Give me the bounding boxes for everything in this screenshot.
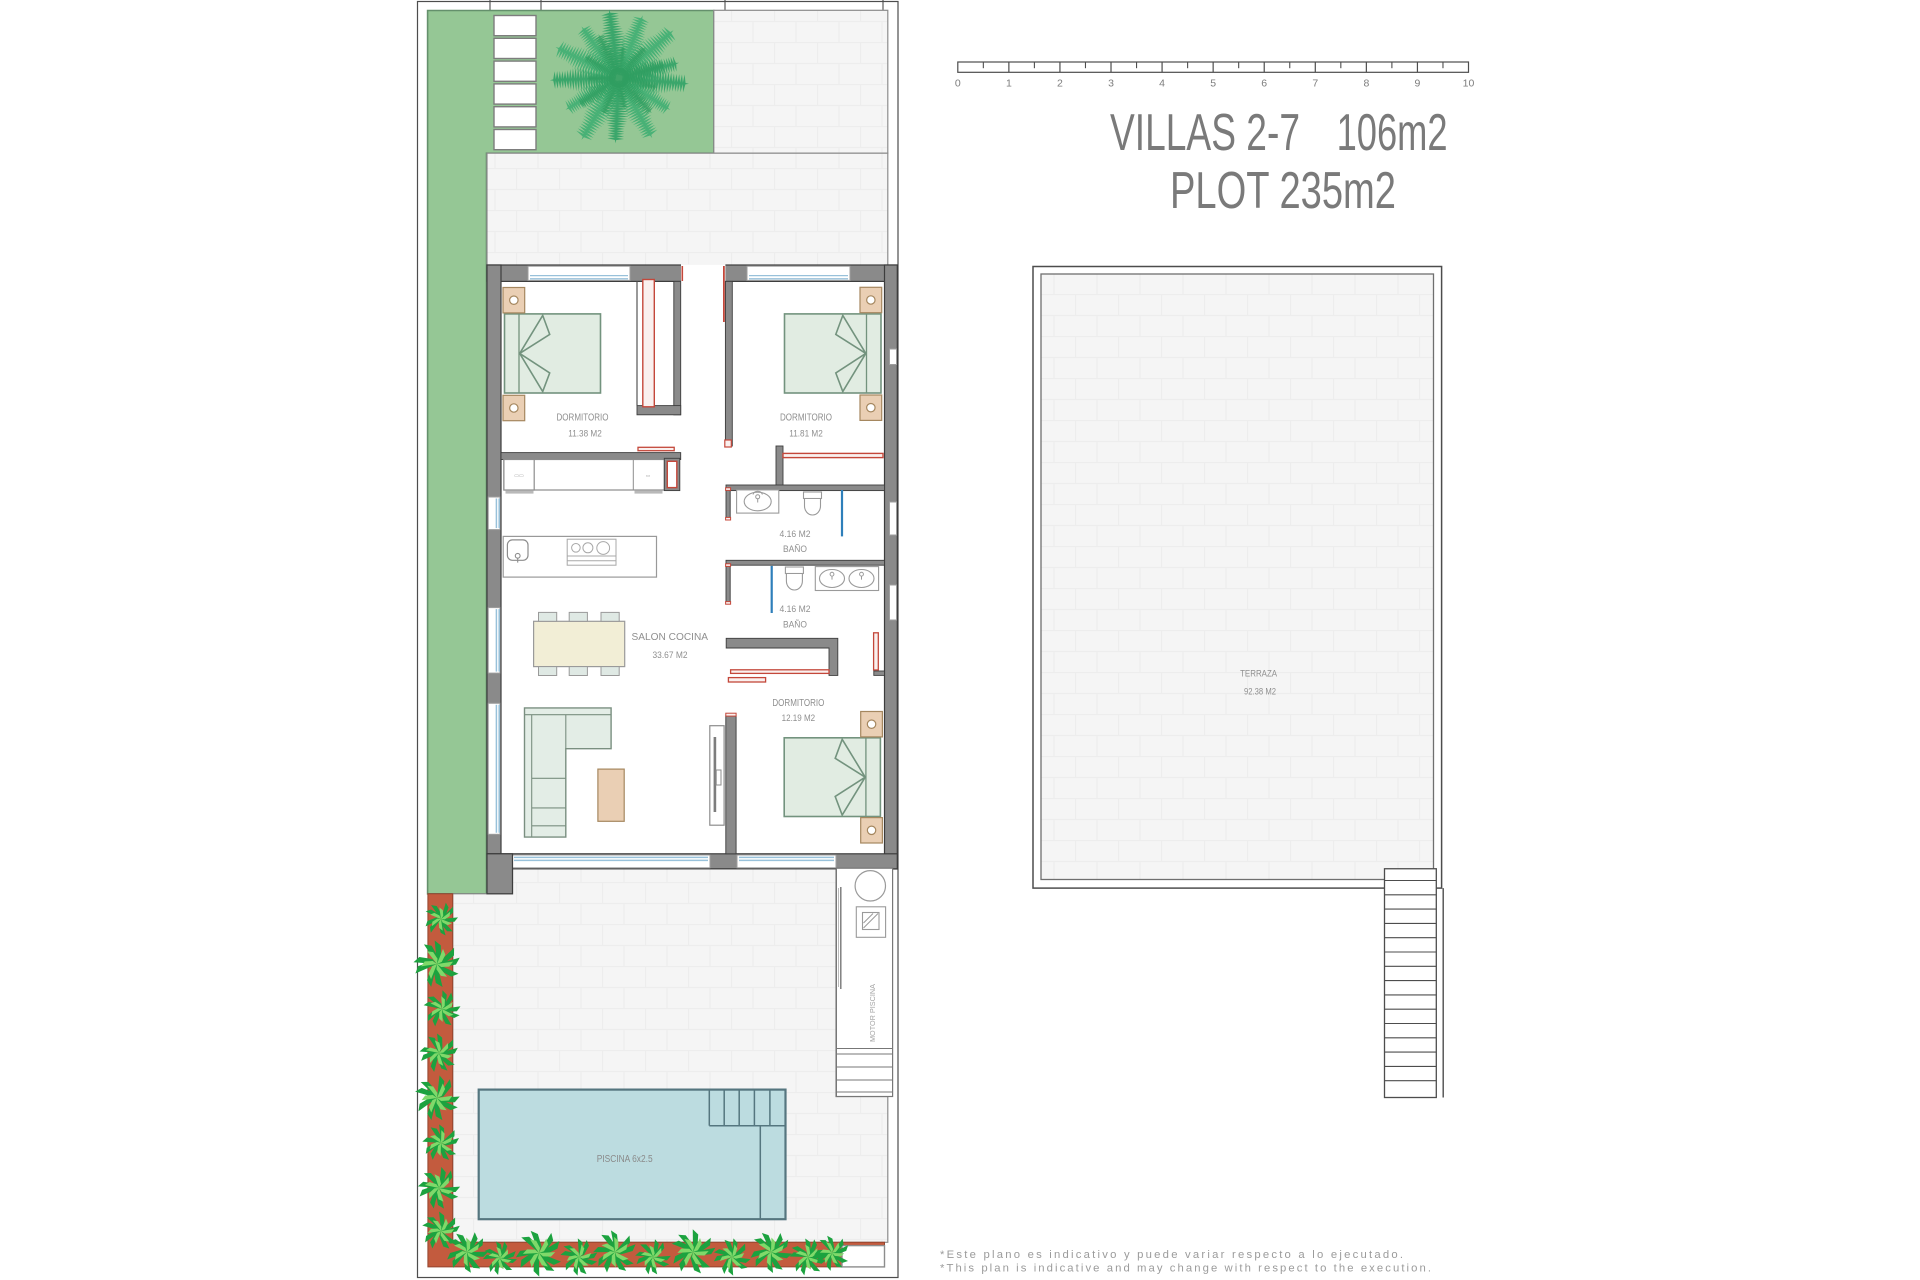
svg-text:0: 0: [955, 78, 961, 90]
svg-text:1: 1: [1006, 78, 1012, 90]
svg-text:BAÑO: BAÑO: [783, 544, 807, 554]
svg-text:DORMITORIO: DORMITORIO: [780, 413, 832, 424]
svg-text:4.16 M2: 4.16 M2: [780, 529, 811, 539]
svg-text:7: 7: [1312, 78, 1318, 90]
svg-text:BAÑO: BAÑO: [783, 620, 807, 630]
svg-text:PISCINA 6x2.5: PISCINA 6x2.5: [597, 1154, 653, 1165]
svg-text:4: 4: [1159, 78, 1165, 90]
svg-text:5: 5: [1210, 78, 1216, 90]
svg-text:*Este plano es indicativo y pu: *Este plano es indicativo y puede variar…: [940, 1249, 1403, 1261]
svg-text:TERRAZA: TERRAZA: [1240, 669, 1278, 679]
svg-text:DORMITORIO: DORMITORIO: [557, 413, 609, 424]
svg-text:11.81 M2: 11.81 M2: [789, 429, 823, 439]
svg-text:▭▭: ▭▭: [514, 473, 524, 479]
svg-text:DORMITORIO: DORMITORIO: [772, 698, 824, 709]
svg-text:10: 10: [1463, 78, 1475, 90]
svg-text:12.19 M2: 12.19 M2: [782, 713, 816, 723]
svg-text:*This plan is indicative and m: *This plan is indicative and may change …: [940, 1263, 1431, 1275]
svg-text:9: 9: [1415, 78, 1421, 90]
svg-text:PLOT 235m2: PLOT 235m2: [1170, 161, 1396, 219]
svg-text:2: 2: [1057, 78, 1063, 90]
svg-text:SALON COCINA: SALON COCINA: [632, 632, 709, 643]
svg-text:▭: ▭: [646, 473, 651, 478]
svg-text:11.38 M2: 11.38 M2: [568, 429, 602, 439]
svg-text:106m2: 106m2: [1337, 103, 1448, 161]
svg-text:8: 8: [1363, 78, 1369, 90]
svg-text:4.16 M2: 4.16 M2: [780, 604, 811, 614]
svg-text:6: 6: [1261, 78, 1267, 90]
svg-text:33.67 M2: 33.67 M2: [653, 650, 688, 660]
svg-text:92.38 M2: 92.38 M2: [1244, 687, 1276, 697]
svg-text:VILLAS 2-7: VILLAS 2-7: [1110, 103, 1300, 161]
svg-text:MOTOR PISCINA: MOTOR PISCINA: [868, 984, 877, 1042]
svg-text:3: 3: [1108, 78, 1114, 90]
